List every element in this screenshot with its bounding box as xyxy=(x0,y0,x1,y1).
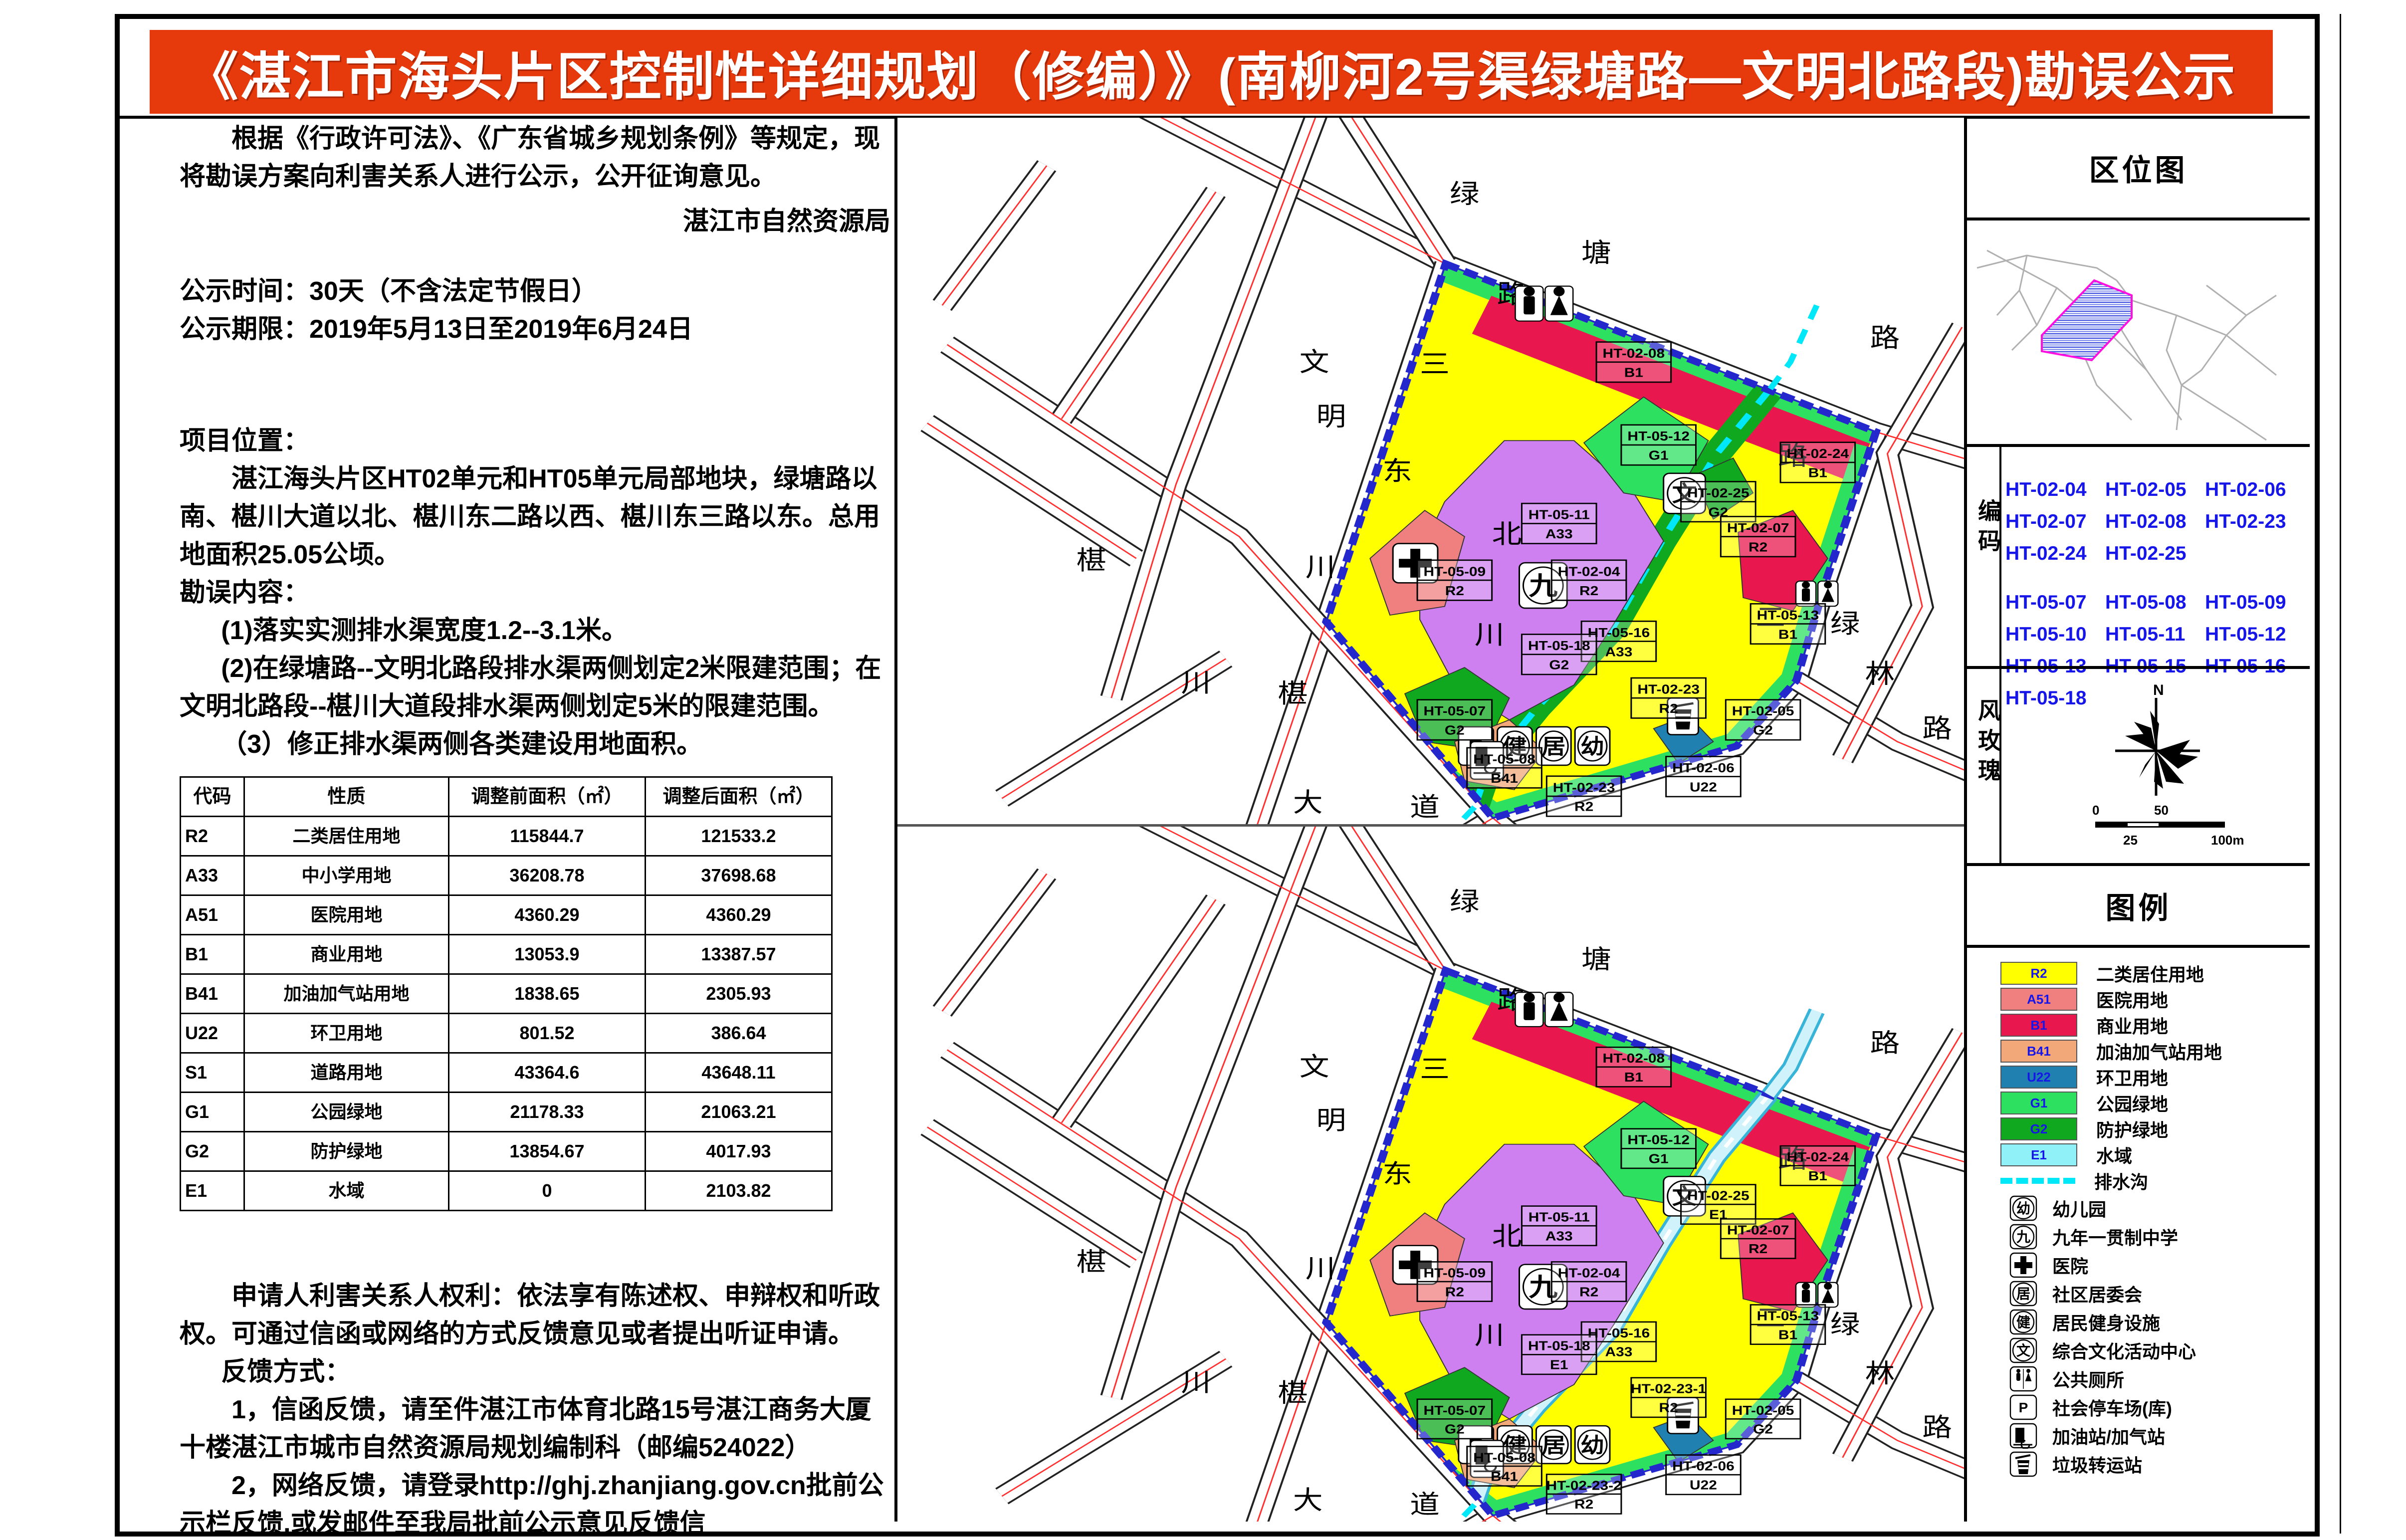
page-title: 《湛江市海头片区控制性详细规划（修编）》(南柳河2号渠绿塘路—文明北路段)勘误公… xyxy=(186,34,2236,110)
svg-text:R2: R2 xyxy=(1749,540,1767,554)
svg-text:100m: 100m xyxy=(2211,833,2244,848)
legend-row: G1公园绿地 xyxy=(2000,1090,2300,1116)
culture-center-icon: 文 xyxy=(2009,1337,2037,1363)
svg-text:R2: R2 xyxy=(1574,1497,1593,1512)
svg-text:HT-02-05: HT-02-05 xyxy=(1732,704,1794,718)
road-name-char: 大 xyxy=(1293,1486,1323,1515)
table-cell: A51 xyxy=(181,895,244,935)
legend-name: 加油站/加气站 xyxy=(2052,1423,2165,1449)
location-roads xyxy=(1977,250,2276,440)
road-name-char: 大 xyxy=(1293,788,1323,817)
project-location-body: 湛江海头片区HT02单元和HT05单元局部地块，绿塘路以南、椹川大道以北、椹川东… xyxy=(180,460,890,574)
table-cell: 商业用地 xyxy=(244,935,449,974)
road-name-char: 绿 xyxy=(1450,179,1480,209)
svg-text:G2: G2 xyxy=(1445,1422,1465,1437)
legend-symbol-row: 健居民健身设施 xyxy=(2000,1308,2300,1336)
table-cell: 13387.57 xyxy=(646,935,832,974)
svg-text:R2: R2 xyxy=(1574,799,1593,814)
table-cell: 2305.93 xyxy=(646,974,832,1014)
road-name-char: 道 xyxy=(1410,1490,1440,1519)
plan-map-before: 绿塘路路三文明东川北川椹川大椹路二绿林路道P健居幼九文HT-02-08B1HT-… xyxy=(897,118,1964,824)
road-name-char: 路 xyxy=(1922,713,1952,743)
legend-row: B1商业用地 xyxy=(2000,1012,2300,1038)
location-map xyxy=(1967,220,2310,444)
legend-name: 排水沟 xyxy=(2094,1168,2148,1194)
table-cell: 386.64 xyxy=(646,1014,832,1053)
table-cell: 801.52 xyxy=(449,1014,646,1053)
table-header: 代码 xyxy=(181,777,244,817)
svg-text:B1: B1 xyxy=(1778,1327,1797,1342)
road-name-char: 绿 xyxy=(1830,1310,1860,1338)
legend-name: 医院用地 xyxy=(2096,986,2168,1012)
svg-text:居: 居 xyxy=(1541,735,1565,759)
road-name-char: 明 xyxy=(1316,402,1346,431)
svg-text:A33: A33 xyxy=(1545,1229,1573,1243)
table-cell: 115844.7 xyxy=(449,817,646,856)
project-location-title: 项目位置： xyxy=(180,422,890,460)
legend-name: 水域 xyxy=(2096,1142,2132,1168)
location-map-title: 区位图 xyxy=(1967,118,2310,218)
svg-text:HT-02-23-2: HT-02-23-2 xyxy=(1546,1478,1622,1493)
legend-name: 商业用地 xyxy=(2096,1012,2168,1038)
divider xyxy=(1967,945,2310,948)
svg-text:HT-05-18: HT-05-18 xyxy=(1528,1339,1590,1353)
parcel-code: HT-02-04 xyxy=(2005,479,2105,501)
svg-text:G2: G2 xyxy=(1753,723,1773,737)
svg-text:R2: R2 xyxy=(1445,1285,1464,1299)
svg-text:HT-02-06: HT-02-06 xyxy=(1672,1459,1735,1474)
table-cell: 中小学用地 xyxy=(244,856,449,895)
svg-text:G2: G2 xyxy=(1549,658,1569,672)
svg-text:50: 50 xyxy=(2154,803,2169,818)
legend-swatch: B41 xyxy=(2000,1040,2077,1063)
legend-row: A51医院用地 xyxy=(2000,986,2300,1012)
codes-row: HT-02-24HT-02-25 xyxy=(2005,538,2305,570)
road-name-char: 椹 xyxy=(1278,1378,1308,1407)
title-banner: 《湛江市海头片区控制性详细规划（修编）》(南柳河2号渠绿塘路—文明北路段)勘误公… xyxy=(150,30,2273,114)
table-cell: 4360.29 xyxy=(646,895,832,935)
table-cell: B41 xyxy=(181,974,244,1014)
legend-name: 九年一贯制中学 xyxy=(2052,1224,2178,1250)
legend-row: G2防护绿地 xyxy=(2000,1116,2300,1142)
location-site-highlight xyxy=(2042,280,2132,360)
divider xyxy=(1999,669,2001,863)
parcel-code: HT-02-08 xyxy=(2105,511,2205,533)
svg-text:A33: A33 xyxy=(1545,527,1573,541)
legend-symbol-row: 文综合文化活动中心 xyxy=(2000,1336,2300,1364)
legend-list: R2二类居住用地A51医院用地B1商业用地B41加油加气站用地U22环卫用地G1… xyxy=(2000,960,2300,1478)
svg-text:HT-05-09: HT-05-09 xyxy=(1424,1266,1486,1280)
table-cell: 43364.6 xyxy=(449,1053,646,1093)
road-name-char: 塘 xyxy=(1581,945,1611,974)
svg-text:HT-02-25: HT-02-25 xyxy=(1687,486,1750,500)
road-name-char: 绿 xyxy=(1450,887,1480,916)
road-name-char: 东 xyxy=(1382,456,1412,485)
legend-swatch: E1 xyxy=(2000,1143,2077,1166)
svg-text:HT-05-07: HT-05-07 xyxy=(1424,1403,1486,1418)
codes-row: HT-05-07HT-05-08HT-05-09 xyxy=(2005,587,2305,619)
divider xyxy=(1967,444,2310,447)
svg-text:0: 0 xyxy=(2092,803,2099,818)
page-trim-line xyxy=(2340,14,2341,1534)
table-cell: 37698.68 xyxy=(646,856,832,895)
road-name-char: 川 xyxy=(1181,668,1211,697)
svg-text:幼: 幼 xyxy=(1580,1434,1604,1457)
road-name-char: 文 xyxy=(1300,1052,1329,1081)
divider xyxy=(1967,666,2310,669)
north-label: N xyxy=(2153,682,2164,698)
codes-row: HT-05-10HT-05-11HT-05-12 xyxy=(2005,619,2305,651)
parcel-code: HT-05-08 xyxy=(2105,592,2205,614)
svg-text:HT-02-25: HT-02-25 xyxy=(1687,1188,1750,1203)
svg-text:HT-02-23: HT-02-23 xyxy=(1553,780,1615,795)
table-cell: 公园绿地 xyxy=(244,1093,449,1132)
legend-name: 社会停车场(库) xyxy=(2052,1394,2172,1420)
table-row: S1道路用地43364.643648.11 xyxy=(181,1053,832,1093)
parcel-code: HT-02-24 xyxy=(2005,543,2105,565)
svg-text:HT-05-13: HT-05-13 xyxy=(1757,608,1819,622)
legend-symbol-row: 医院 xyxy=(2000,1251,2300,1279)
parcel-code: HT-05-11 xyxy=(2105,624,2205,646)
parcel-code: HT-05-12 xyxy=(2205,624,2305,646)
public-toilet-icon xyxy=(2009,1366,2037,1392)
land-use-area-table: 代码性质调整前面积（㎡）调整后面积（㎡）R2二类居住用地115844.71215… xyxy=(180,776,890,1211)
codes-row: HT-02-04HT-02-05HT-02-06 xyxy=(2005,474,2305,506)
svg-text:B1: B1 xyxy=(1778,627,1797,642)
svg-text:B1: B1 xyxy=(1624,1070,1643,1085)
legend-swatch: U22 xyxy=(2000,1066,2077,1089)
svg-text:R2: R2 xyxy=(1659,701,1678,716)
drainage-line-icon xyxy=(2000,1178,2075,1184)
table-row: R2二类居住用地115844.7121533.2 xyxy=(181,817,832,856)
svg-text:R2: R2 xyxy=(1659,1400,1678,1415)
table-row: B1商业用地13053.913387.57 xyxy=(181,935,832,974)
road-name-char: 三 xyxy=(1420,1054,1450,1083)
road-name-char: 北 xyxy=(1492,519,1522,549)
table-cell: 防护绿地 xyxy=(244,1132,449,1171)
svg-text:HT-05-12: HT-05-12 xyxy=(1627,1133,1690,1147)
road-name-char: 川 xyxy=(1306,552,1335,582)
svg-text:HT-05-13: HT-05-13 xyxy=(1757,1309,1819,1323)
svg-text:B1: B1 xyxy=(1808,465,1827,480)
legend-name: 居民健身设施 xyxy=(2052,1309,2160,1335)
legend-symbol-row: 居社区居委会 xyxy=(2000,1279,2300,1308)
divider xyxy=(1999,447,2001,666)
feedback-title: 反馈方式： xyxy=(180,1353,890,1391)
table-cell: 4017.93 xyxy=(646,1132,832,1171)
rights-paragraph: 申请人利害关系人权利：依法享有陈述权、申辩权和听政权。可通过信函或网络的方式反馈… xyxy=(180,1277,890,1353)
legend-swatch: R2 xyxy=(2000,962,2077,985)
svg-text:R2: R2 xyxy=(1749,1242,1767,1256)
notice-paragraph: 根据《行政许可法》、《广东省城乡规划条例》等规定，现将勘误方案向利害关系人进行公… xyxy=(180,120,890,196)
publicity-time: 公示时间：30天（不含法定节假日） xyxy=(180,272,890,310)
svg-text:HT-05-12: HT-05-12 xyxy=(1627,429,1690,443)
table-cell: 水域 xyxy=(244,1171,449,1211)
feedback-mail: 1，信函反馈，请至件湛江市体育北路15号湛江商务大厦十楼湛江市城市自然资源局规划… xyxy=(180,1391,890,1467)
table-row: B41加油加气站用地1838.652305.93 xyxy=(181,974,832,1014)
table-cell: U22 xyxy=(181,1014,244,1053)
road-name-char: 林 xyxy=(1865,659,1895,688)
table-cell: 环卫用地 xyxy=(244,1014,449,1053)
table-cell: 加油加气站用地 xyxy=(244,974,449,1014)
road-name-char: 川 xyxy=(1475,1320,1505,1349)
road-name-char: 川 xyxy=(1475,620,1505,649)
waste-transfer-icon xyxy=(2009,1451,2037,1477)
nine-year-school-icon: 九 xyxy=(2009,1224,2037,1250)
fitness-icon: 健 xyxy=(2009,1309,2037,1335)
legend-row: R2二类居住用地 xyxy=(2000,960,2300,986)
codes-row: HT-02-07HT-02-08HT-02-23 xyxy=(2005,506,2305,538)
plan-map-after: 绿塘路路三文明东川北川椹川大椹路二绿林路道P健居幼九文HT-02-08B1HT-… xyxy=(897,827,1964,1522)
legend-swatch: G1 xyxy=(2000,1092,2077,1114)
hospital-cross-icon xyxy=(2009,1252,2037,1278)
road-name-char: 三 xyxy=(1420,349,1450,379)
table-cell: 4360.29 xyxy=(449,895,646,935)
legend-name: 综合文化活动中心 xyxy=(2052,1337,2196,1363)
svg-text:文: 文 xyxy=(2016,1342,2030,1358)
svg-text:HT-02-06: HT-02-06 xyxy=(1672,761,1735,775)
svg-text:U22: U22 xyxy=(1690,1478,1717,1492)
svg-text:HT-02-07: HT-02-07 xyxy=(1727,521,1789,535)
agency-name: 湛江市自然资源局 xyxy=(180,203,890,240)
legend-symbol-row: 加油站/加气站 xyxy=(2000,1421,2300,1450)
parcel-code: HT-02-05 xyxy=(2105,479,2205,501)
svg-text:R2: R2 xyxy=(1579,584,1598,598)
road-name-char: 北 xyxy=(1492,1222,1522,1251)
publicity-period: 公示期限：2019年5月13日至2019年6月24日 xyxy=(180,310,890,348)
legend-row: B41加油加气站用地 xyxy=(2000,1038,2300,1064)
road-name-char: 椹 xyxy=(1278,678,1308,708)
community-icon: 居 xyxy=(2009,1281,2037,1307)
table-cell: R2 xyxy=(181,817,244,856)
svg-text:HT-05-09: HT-05-09 xyxy=(1424,564,1486,579)
windrose: N 0 50 25 100m xyxy=(2025,676,2295,858)
legend-row: E1水域 xyxy=(2000,1142,2300,1168)
legend-name: 公共厕所 xyxy=(2052,1366,2124,1392)
legend-name: 防护绿地 xyxy=(2096,1116,2168,1142)
errata-title: 勘误内容： xyxy=(180,574,890,612)
legend-symbol-row: 公共厕所 xyxy=(2000,1364,2300,1393)
table-cell: 43648.11 xyxy=(646,1053,832,1093)
svg-text:HT-02-05: HT-02-05 xyxy=(1732,1403,1794,1418)
svg-text:幼: 幼 xyxy=(1580,735,1604,759)
svg-text:HT-02-24: HT-02-24 xyxy=(1786,446,1849,461)
table-header: 调整前面积（㎡） xyxy=(449,777,646,817)
table-cell: 36208.78 xyxy=(449,856,646,895)
road-name-char: 路 xyxy=(1922,1413,1952,1442)
svg-text:健: 健 xyxy=(2016,1315,2030,1330)
svg-text:E1: E1 xyxy=(1550,1357,1568,1372)
table-header: 调整后面积（㎡） xyxy=(646,777,832,817)
legend-name: 医院 xyxy=(2052,1252,2088,1278)
svg-text:25: 25 xyxy=(2123,833,2138,848)
legend-row: U22环卫用地 xyxy=(2000,1064,2300,1090)
table-cell: 21063.21 xyxy=(646,1093,832,1132)
svg-text:HT-02-07: HT-02-07 xyxy=(1727,1223,1789,1237)
gas-station-icon xyxy=(2009,1423,2037,1449)
parking-icon: P xyxy=(2009,1394,2037,1420)
svg-text:HT-05-18: HT-05-18 xyxy=(1528,639,1590,653)
table-cell: 道路用地 xyxy=(244,1053,449,1093)
kindergarten-icon: 幼 xyxy=(2009,1195,2037,1221)
table-cell: G1 xyxy=(181,1093,244,1132)
table-cell: G2 xyxy=(181,1132,244,1171)
table-row: A51医院用地4360.294360.29 xyxy=(181,895,832,935)
svg-text:HT-02-08: HT-02-08 xyxy=(1603,1051,1665,1066)
svg-text:G1: G1 xyxy=(1649,1151,1669,1166)
table-row: G1公园绿地21178.3321063.21 xyxy=(181,1093,832,1132)
errata-item: (2)在绿塘路--文明北路段排水渠两侧划定2米限建范围；在文明北路段--椹川大道… xyxy=(180,650,890,725)
road-name-char: 椹 xyxy=(1077,546,1106,575)
legend-name: 社区居委会 xyxy=(2052,1281,2142,1307)
svg-text:HT-05-11: HT-05-11 xyxy=(1529,507,1590,522)
table-row: E1水域02103.82 xyxy=(181,1171,832,1211)
svg-text:九: 九 xyxy=(2016,1229,2030,1245)
legend-name: 二类居住用地 xyxy=(2096,960,2204,986)
road-name-char: 绿 xyxy=(1830,609,1860,638)
table-header: 性质 xyxy=(244,777,449,817)
table-cell: S1 xyxy=(181,1053,244,1093)
legend-symbol-row: 九九年一贯制中学 xyxy=(2000,1222,2300,1251)
road-name-char: 文 xyxy=(1300,347,1329,377)
legend-symbol-row: 幼幼儿园 xyxy=(2000,1194,2300,1222)
svg-text:B41: B41 xyxy=(1491,771,1518,786)
svg-text:B1: B1 xyxy=(1808,1169,1827,1183)
table-cell: 13053.9 xyxy=(449,935,646,974)
parcel-code: HT-02-25 xyxy=(2105,543,2205,565)
table-header-row: 代码性质调整前面积（㎡）调整后面积（㎡） xyxy=(181,777,832,817)
table-row: U22环卫用地801.52386.64 xyxy=(181,1014,832,1053)
errata-item: (1)落实实测排水渠宽度1.2--3.1米。 xyxy=(180,612,890,650)
legend-name: 加油加气站用地 xyxy=(2096,1038,2222,1064)
svg-text:A33: A33 xyxy=(1605,645,1633,659)
svg-text:G2: G2 xyxy=(1445,723,1465,737)
notice-text-panel: 根据《行政许可法》、《广东省城乡规划条例》等规定，现将勘误方案向利害关系人进行公… xyxy=(180,120,890,1517)
legend-row: 排水沟 xyxy=(2000,1168,2300,1194)
legend-title: 图例 xyxy=(1967,866,2310,945)
road-name-char: 道 xyxy=(1410,792,1440,822)
road-name-char: 明 xyxy=(1316,1105,1346,1134)
parcel-code: HT-05-09 xyxy=(2205,592,2305,614)
svg-text:HT-05-08: HT-05-08 xyxy=(1473,752,1535,766)
legend-name: 幼儿园 xyxy=(2052,1195,2106,1221)
table-cell: 医院用地 xyxy=(244,895,449,935)
legend-symbol-row: P社会停车场(库) xyxy=(2000,1393,2300,1421)
svg-text:U22: U22 xyxy=(1690,780,1717,794)
notice-page: 《湛江市海头片区控制性详细规划（修编）》(南柳河2号渠绿塘路—文明北路段)勘误公… xyxy=(0,0,2406,1540)
location-map-svg xyxy=(1967,220,2310,444)
errata-item: （3）修正排水渠两侧各类建设用地面积。 xyxy=(180,725,890,763)
svg-text:居: 居 xyxy=(2016,1286,2030,1302)
parcel-code: HT-05-07 xyxy=(2005,592,2105,614)
table-row: A33中小学用地36208.7837698.68 xyxy=(181,856,832,895)
svg-text:G2: G2 xyxy=(1753,1422,1773,1437)
table-cell: 121533.2 xyxy=(646,817,832,856)
table-cell: A33 xyxy=(181,856,244,895)
road-name-char: 东 xyxy=(1382,1159,1412,1188)
table-cell: 13854.67 xyxy=(449,1132,646,1171)
legend-symbol-row: 垃圾转运站 xyxy=(2000,1450,2300,1478)
legend-name: 公园绿地 xyxy=(2096,1090,2168,1116)
svg-text:HT-05-08: HT-05-08 xyxy=(1473,1450,1535,1465)
table-cell: B1 xyxy=(181,935,244,974)
legend-swatch: G2 xyxy=(2000,1117,2077,1140)
table-cell: 0 xyxy=(449,1171,646,1211)
road-name-char: 林 xyxy=(1865,1359,1895,1388)
svg-text:HT-02-24: HT-02-24 xyxy=(1787,1150,1849,1164)
table-cell: 2103.82 xyxy=(646,1171,832,1211)
table-row: G2防护绿地13854.674017.93 xyxy=(181,1132,832,1171)
svg-text:HT-02-23-1: HT-02-23-1 xyxy=(1631,1382,1706,1396)
legend-name: 垃圾转运站 xyxy=(2052,1451,2142,1477)
svg-text:HT-02-04: HT-02-04 xyxy=(1558,564,1620,579)
svg-text:P: P xyxy=(2019,1400,2028,1415)
road-name-char: 塘 xyxy=(1581,238,1611,267)
table-cell: E1 xyxy=(181,1171,244,1211)
svg-text:居: 居 xyxy=(1541,1434,1565,1457)
svg-text:HT-02-04: HT-02-04 xyxy=(1558,1266,1620,1280)
legend-name: 环卫用地 xyxy=(2096,1064,2168,1090)
svg-text:B1: B1 xyxy=(1624,365,1643,380)
parcel-code: HT-02-23 xyxy=(2205,511,2305,533)
svg-text:R2: R2 xyxy=(1445,584,1464,598)
table-cell: 二类居住用地 xyxy=(244,817,449,856)
feedback-web: 2，网络反馈，请登录http://ghj.zhanjiang.gov.cn批前公… xyxy=(180,1467,890,1540)
parcel-code: HT-02-06 xyxy=(2205,479,2305,501)
parcel-code: HT-02-07 xyxy=(2005,511,2105,533)
svg-text:R2: R2 xyxy=(1579,1285,1598,1299)
plan-map-before-svg: 绿塘路路三文明东川北川椹川大椹路二绿林路道P健居幼九文HT-02-08B1HT-… xyxy=(897,118,1964,824)
road-name-char: 路 xyxy=(1870,1029,1900,1058)
road-name-char: 川 xyxy=(1181,1367,1211,1396)
road-name-char: 椹 xyxy=(1077,1247,1106,1276)
parcel-code: HT-05-10 xyxy=(2005,624,2105,646)
svg-text:A33: A33 xyxy=(1605,1345,1633,1359)
road-name-char: 路 xyxy=(1870,323,1900,353)
table-cell: 1838.65 xyxy=(449,974,646,1014)
legend-swatch: B1 xyxy=(2000,1014,2077,1037)
svg-text:幼: 幼 xyxy=(2016,1201,2030,1216)
svg-text:B41: B41 xyxy=(1491,1469,1518,1484)
svg-text:HT-02-08: HT-02-08 xyxy=(1603,346,1665,361)
plan-map-after-svg: 绿塘路路三文明东川北川椹川大椹路二绿林路道P健居幼九文HT-02-08B1HT-… xyxy=(897,827,1964,1522)
windrose-svg: N 0 50 25 100m xyxy=(2025,676,2295,856)
road-name-char: 川 xyxy=(1306,1254,1335,1283)
svg-text:HT-02-23: HT-02-23 xyxy=(1637,682,1700,696)
legend-swatch: A51 xyxy=(2000,988,2077,1011)
svg-text:HT-05-07: HT-05-07 xyxy=(1424,704,1486,718)
svg-text:HT-05-11: HT-05-11 xyxy=(1529,1210,1590,1224)
svg-text:G1: G1 xyxy=(1649,448,1669,462)
table-cell: 21178.33 xyxy=(449,1093,646,1132)
